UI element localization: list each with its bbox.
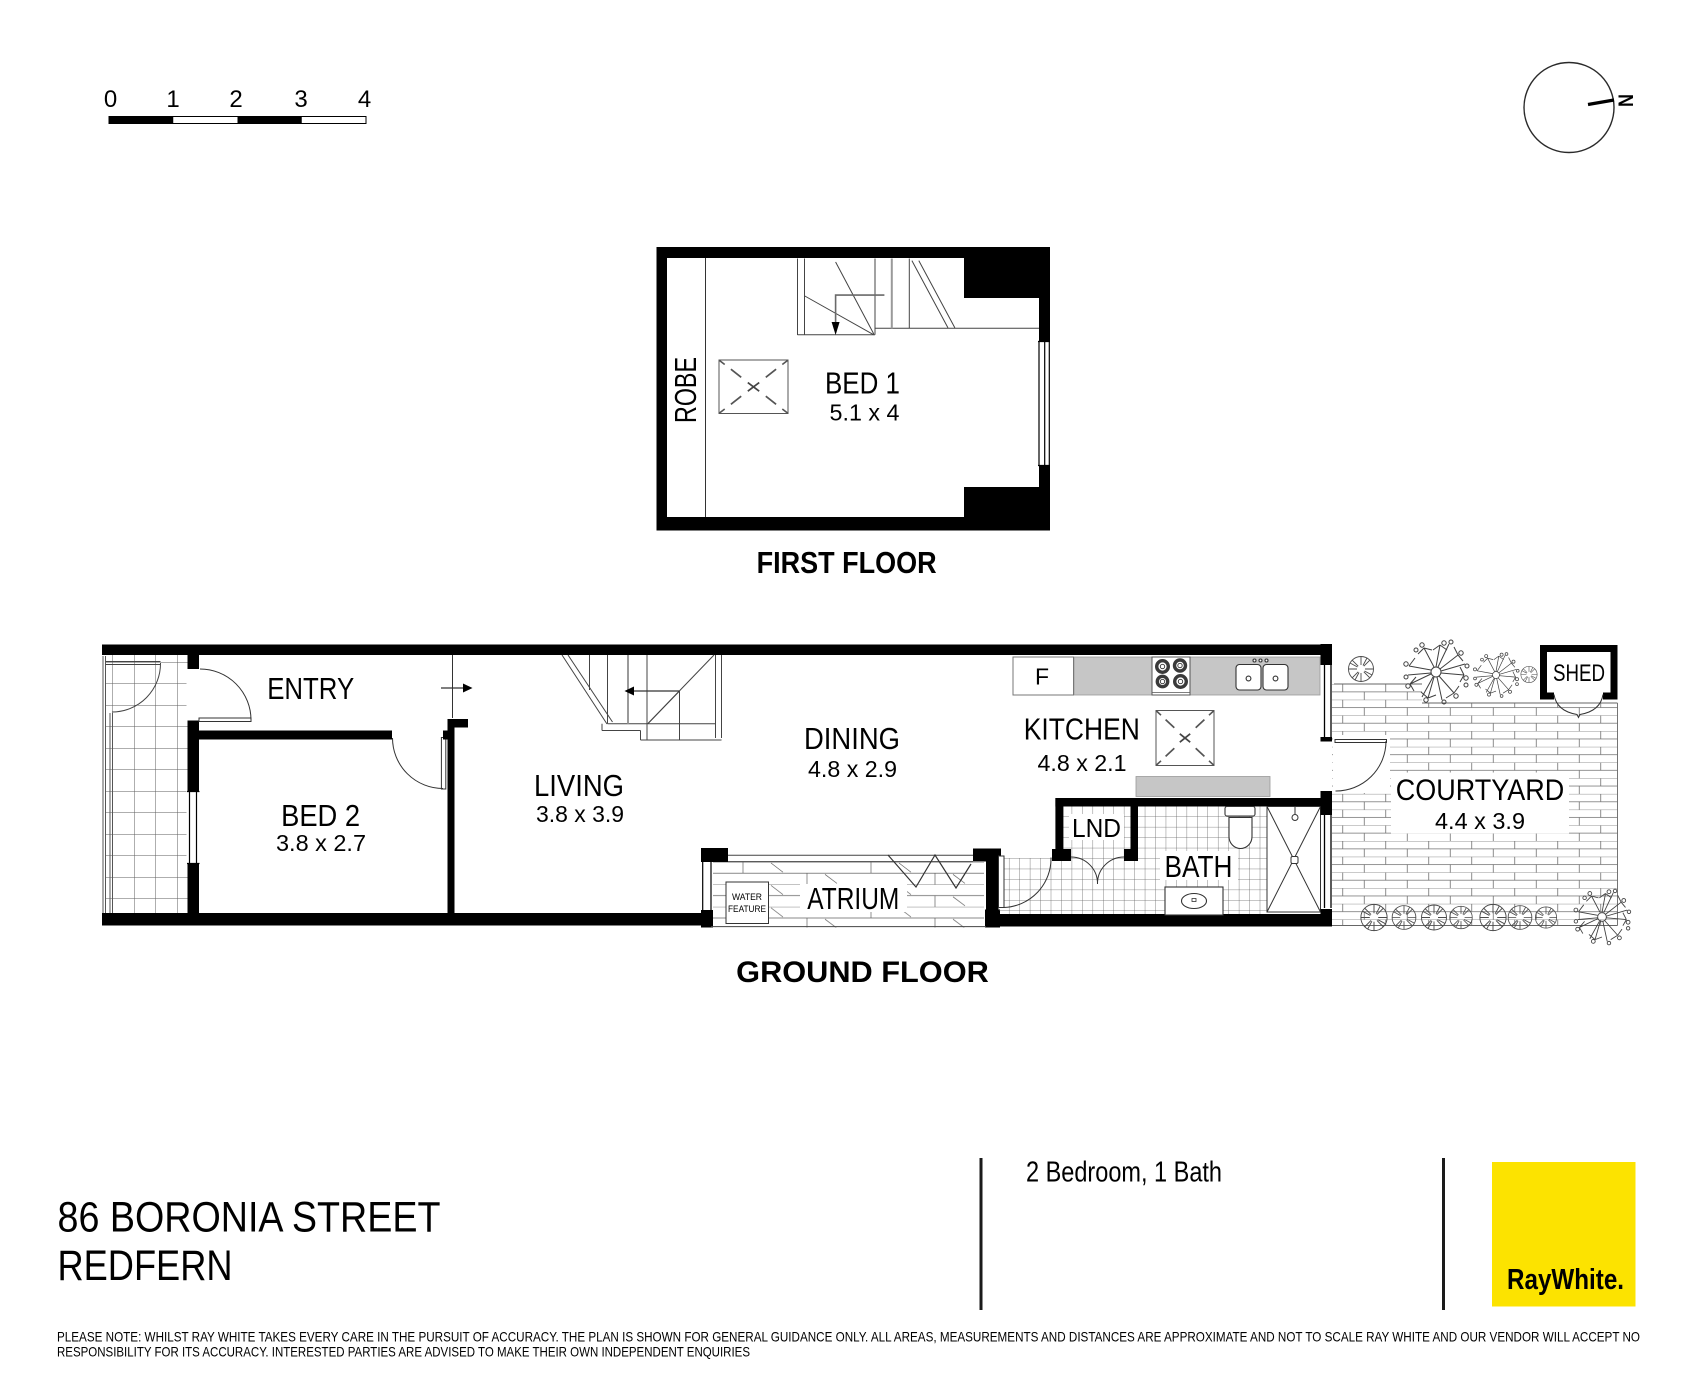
svg-text:3: 3 xyxy=(294,86,307,113)
svg-text:BATH: BATH xyxy=(1165,849,1233,884)
svg-text:RESPONSIBILITY FOR ITS ACCURAC: RESPONSIBILITY FOR ITS ACCURACY. INTERES… xyxy=(57,1344,750,1360)
svg-text:GROUND FLOOR: GROUND FLOOR xyxy=(736,956,989,989)
svg-text:PLEASE NOTE: WHILST RAY WHITE: PLEASE NOTE: WHILST RAY WHITE TAKES EVER… xyxy=(57,1329,1640,1345)
svg-text:4.8 x 2.9: 4.8 x 2.9 xyxy=(808,756,897,782)
svg-text:KITCHEN: KITCHEN xyxy=(1024,712,1140,747)
svg-text:3.8 x 2.7: 3.8 x 2.7 xyxy=(276,830,366,856)
svg-text:ATRIUM: ATRIUM xyxy=(807,881,899,916)
svg-text:4: 4 xyxy=(358,86,371,113)
svg-text:FEATURE: FEATURE xyxy=(728,904,766,915)
svg-text:2: 2 xyxy=(229,86,242,113)
svg-text:ROBE: ROBE xyxy=(668,357,703,423)
svg-text:LND: LND xyxy=(1072,813,1121,843)
svg-text:1: 1 xyxy=(166,86,179,113)
svg-text:4.4 x 3.9: 4.4 x 3.9 xyxy=(1435,808,1525,834)
svg-text:DINING: DINING xyxy=(804,721,900,756)
svg-text:REDFERN: REDFERN xyxy=(58,1242,233,1290)
svg-text:RayWhite.: RayWhite. xyxy=(1507,1264,1624,1296)
svg-text:COURTYARD: COURTYARD xyxy=(1396,774,1565,807)
svg-text:5.1 x 4: 5.1 x 4 xyxy=(830,400,900,426)
svg-text:2 Bedroom, 1 Bath: 2 Bedroom, 1 Bath xyxy=(1026,1157,1222,1189)
svg-text:F: F xyxy=(1035,664,1049,690)
svg-text:3.8 x 3.9: 3.8 x 3.9 xyxy=(536,801,624,827)
svg-text:N: N xyxy=(1614,94,1637,107)
svg-text:ENTRY: ENTRY xyxy=(267,671,354,706)
svg-text:LIVING: LIVING xyxy=(534,768,624,803)
svg-text:FIRST FLOOR: FIRST FLOOR xyxy=(757,545,937,580)
svg-text:0: 0 xyxy=(104,86,117,113)
svg-text:BED 2: BED 2 xyxy=(281,798,360,833)
svg-text:WATER: WATER xyxy=(732,892,762,903)
svg-text:BED 1: BED 1 xyxy=(825,366,900,401)
svg-text:86 BORONIA STREET: 86 BORONIA STREET xyxy=(58,1194,441,1242)
svg-text:4.8 x 2.1: 4.8 x 2.1 xyxy=(1038,750,1127,776)
svg-text:SHED: SHED xyxy=(1553,660,1605,687)
